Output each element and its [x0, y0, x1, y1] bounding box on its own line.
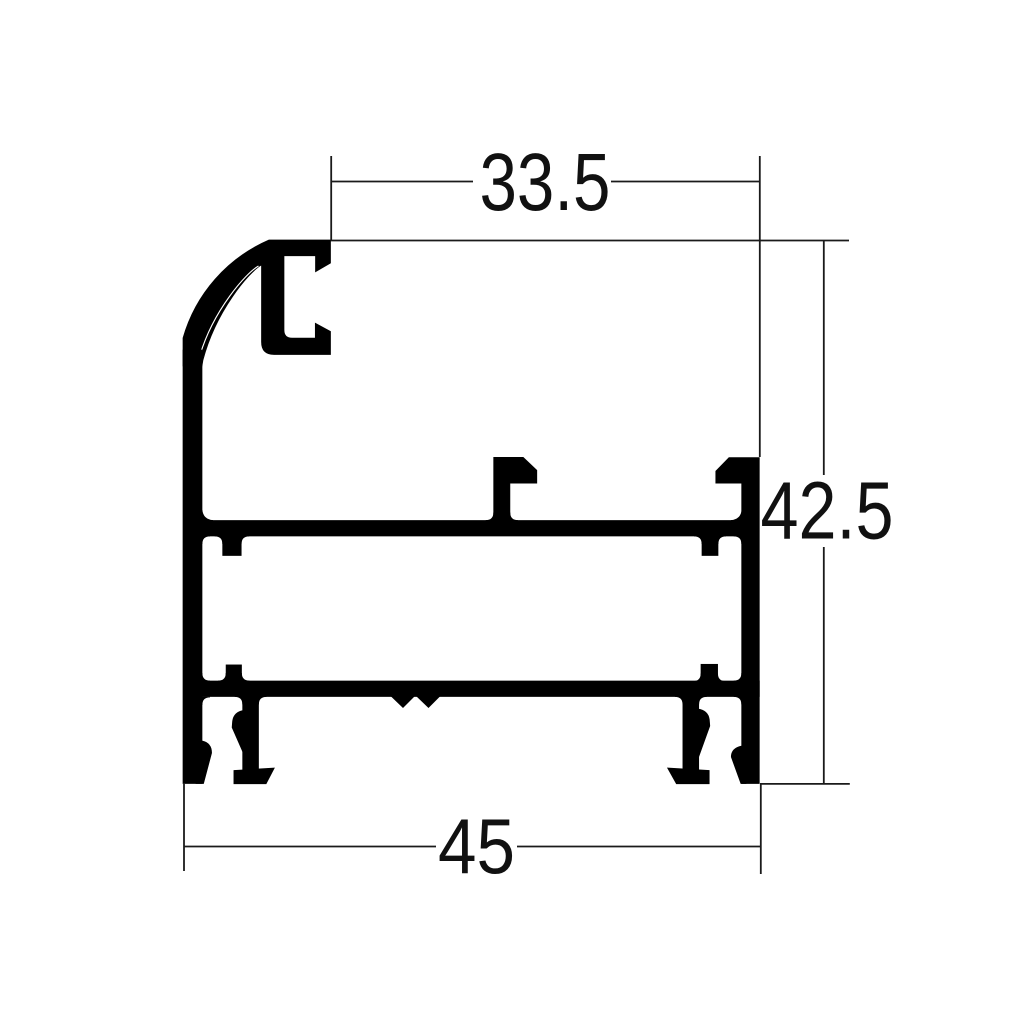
svg-text:33.5: 33.5 [480, 137, 611, 228]
svg-text:45: 45 [438, 802, 515, 890]
svg-text:42.5: 42.5 [761, 466, 894, 557]
